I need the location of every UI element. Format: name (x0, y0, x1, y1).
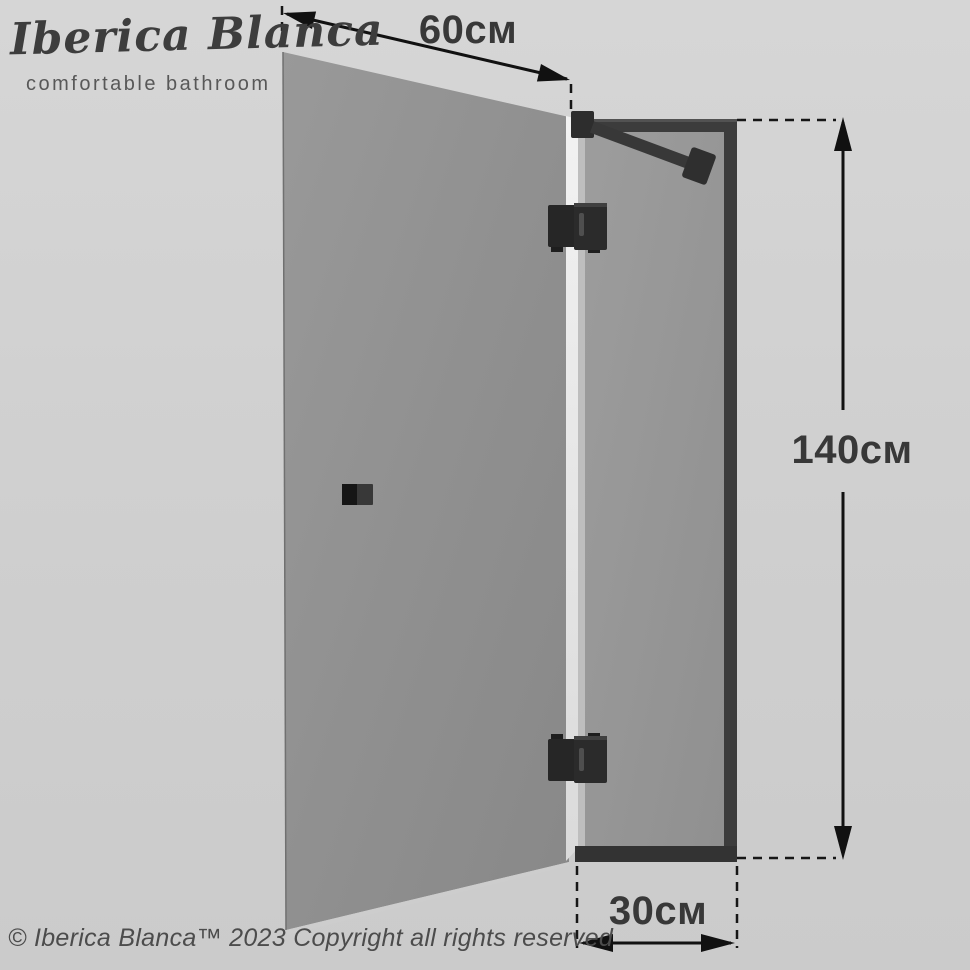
door-handle (342, 484, 373, 505)
shower-door-glass (283, 52, 569, 935)
copyright-text: © Iberica Blanca™ 2023 Copyright all rig… (8, 924, 568, 953)
hinge-bottom-icon (548, 733, 607, 783)
wall-bracket (571, 111, 594, 138)
dimension-label-panel-height: 140см (752, 426, 952, 474)
brand-tagline: comfortable bathroom (26, 73, 270, 96)
product-diagram-stage: Iberica Blanca comfortable bathroom 60см… (0, 0, 970, 970)
dim-arrow-panel-height (834, 117, 852, 860)
brand-logo: Iberica Blanca comfortable bathroom (10, 8, 270, 96)
shower-door-diagram (0, 0, 970, 970)
brand-name: Iberica Blanca (9, 5, 270, 69)
hinge-top-icon (548, 203, 607, 253)
dimension-label-door-width: 60см (368, 6, 568, 54)
